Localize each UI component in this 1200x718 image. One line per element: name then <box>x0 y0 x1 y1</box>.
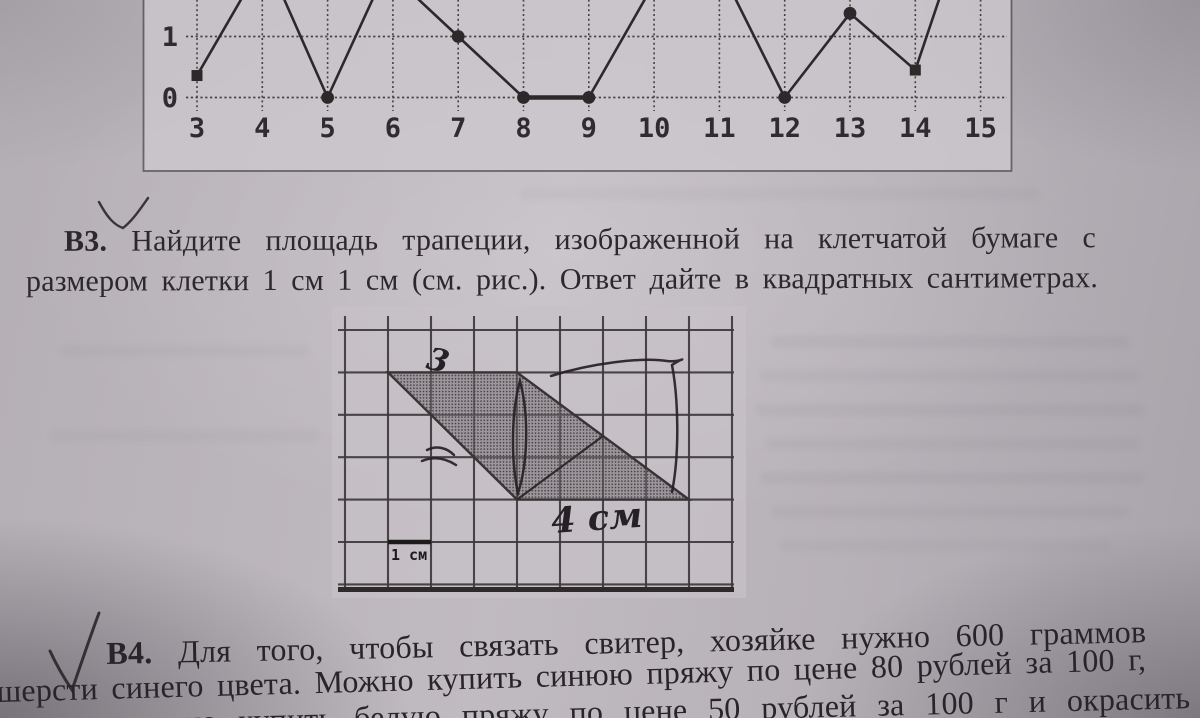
x-tick-label: 9 <box>581 113 597 144</box>
x-tick-label: 11 <box>703 113 736 144</box>
data-point-square <box>192 70 203 81</box>
x-tick-label: 14 <box>899 113 932 144</box>
data-point-circle <box>517 91 530 104</box>
chart-frame <box>144 0 1012 171</box>
handwritten-bottom-base-label: 4 см <box>550 495 644 542</box>
problem-b3-text1: Найдите площадь трапеции, изображенной н… <box>131 221 1096 257</box>
x-tick-label: 4 <box>254 113 270 144</box>
problem-b3-line2: размером клетки 1 см 1 см (см. рис.). От… <box>26 260 1098 300</box>
x-tick-label: 3 <box>189 113 205 144</box>
problem-b4-number: В4. <box>106 634 153 671</box>
x-tick-label: 12 <box>768 113 801 144</box>
x-tick-label: 13 <box>834 113 867 144</box>
problem-b3-number: В3. <box>64 225 107 258</box>
data-point-circle <box>844 7 857 20</box>
graphics-layer: 10345678910111213141534 см <box>0 0 1200 718</box>
data-point-circle <box>778 91 791 104</box>
x-tick-label: 5 <box>319 113 335 144</box>
problem-b3-line1: В3. Найдите площадь трапеции, изображенн… <box>64 220 1096 260</box>
data-point-circle <box>582 91 595 104</box>
textbook-photo-page: 10345678910111213141534 см В3. Найдите п… <box>0 0 1200 718</box>
x-tick-label: 7 <box>450 113 466 144</box>
x-tick-label: 15 <box>964 113 997 144</box>
x-tick-label: 8 <box>515 113 531 144</box>
figure-scale-label: 1 см <box>391 546 431 564</box>
data-point-circle <box>321 91 334 104</box>
y-tick-label: 1 <box>162 22 178 53</box>
data-point-circle <box>452 30 465 43</box>
x-tick-label: 10 <box>638 113 671 144</box>
data-point-square <box>910 65 921 76</box>
x-tick-label: 6 <box>385 113 401 144</box>
y-tick-label: 0 <box>162 83 178 114</box>
